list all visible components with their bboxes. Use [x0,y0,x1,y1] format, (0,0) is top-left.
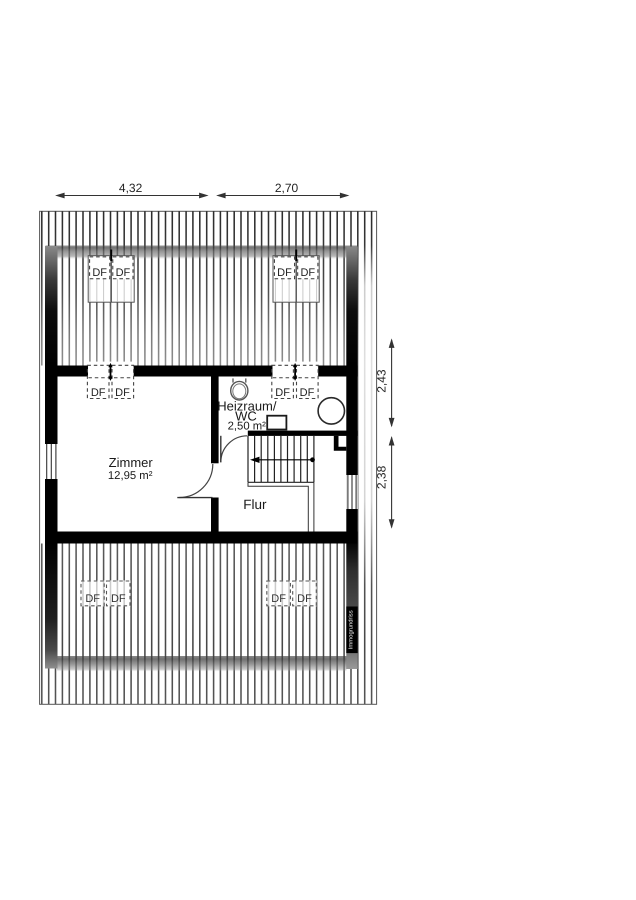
svg-text:Immogrundriss: Immogrundriss [348,610,355,649]
svg-text:DF: DF [85,593,100,605]
svg-text:DF: DF [300,387,315,399]
svg-text:DF: DF [300,267,315,279]
svg-text:DF: DF [92,267,107,279]
svg-text:DF: DF [275,387,290,399]
svg-text:4,32: 4,32 [119,181,143,195]
svg-text:DF: DF [115,387,130,399]
svg-text:DF: DF [277,267,292,279]
svg-text:DF: DF [271,593,286,605]
svg-text:Flur: Flur [243,497,267,512]
svg-text:DF: DF [297,593,312,605]
svg-text:2,38: 2,38 [374,465,388,489]
svg-text:2,50 m²: 2,50 m² [228,421,267,433]
svg-text:DF: DF [91,387,106,399]
svg-text:Zimmer: Zimmer [109,455,154,470]
svg-text:2,70: 2,70 [275,181,299,195]
svg-text:12,95 m²: 12,95 m² [108,470,153,482]
svg-text:DF: DF [111,593,126,605]
svg-text:2,43: 2,43 [374,369,388,393]
svg-text:DF: DF [116,267,131,279]
